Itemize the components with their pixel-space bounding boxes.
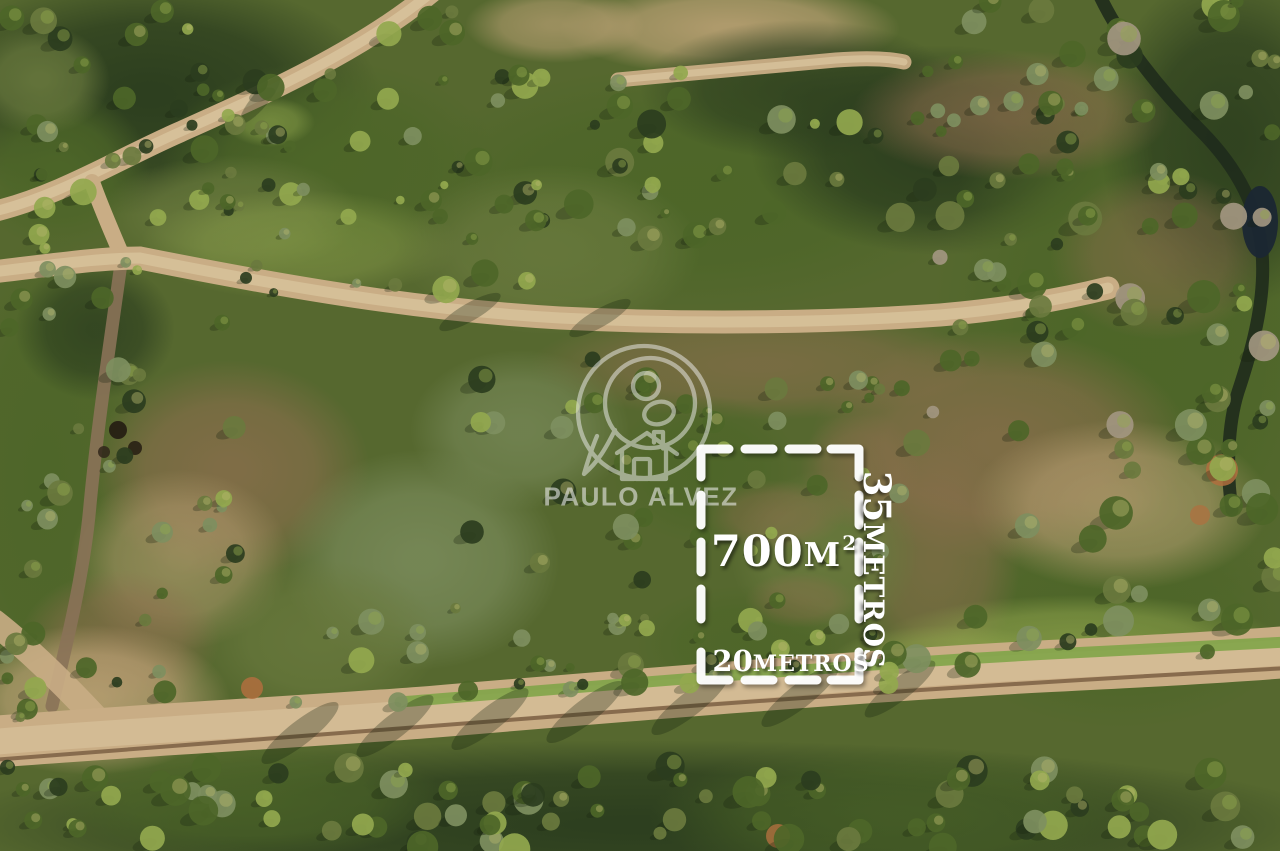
plot-bottom-dimension-label: 20METROS bbox=[712, 644, 869, 678]
aerial-photo: PAULO ALVEZ 700M2 35METROS 20METROS bbox=[0, 0, 1280, 851]
plot-area-label: 700M2 bbox=[711, 527, 857, 577]
area-unit: M bbox=[804, 535, 842, 574]
bottom-dimension-unit: METROS bbox=[753, 651, 870, 677]
bottom-dimension-value: 20 bbox=[712, 644, 752, 678]
plot-boundary-outline bbox=[0, 0, 1280, 851]
plot-corner-top-left bbox=[701, 449, 729, 477]
area-value: 700 bbox=[711, 527, 804, 577]
plot-right-dimension-label: 35METROS bbox=[855, 471, 899, 670]
right-dimension-value: 35 bbox=[855, 471, 899, 523]
